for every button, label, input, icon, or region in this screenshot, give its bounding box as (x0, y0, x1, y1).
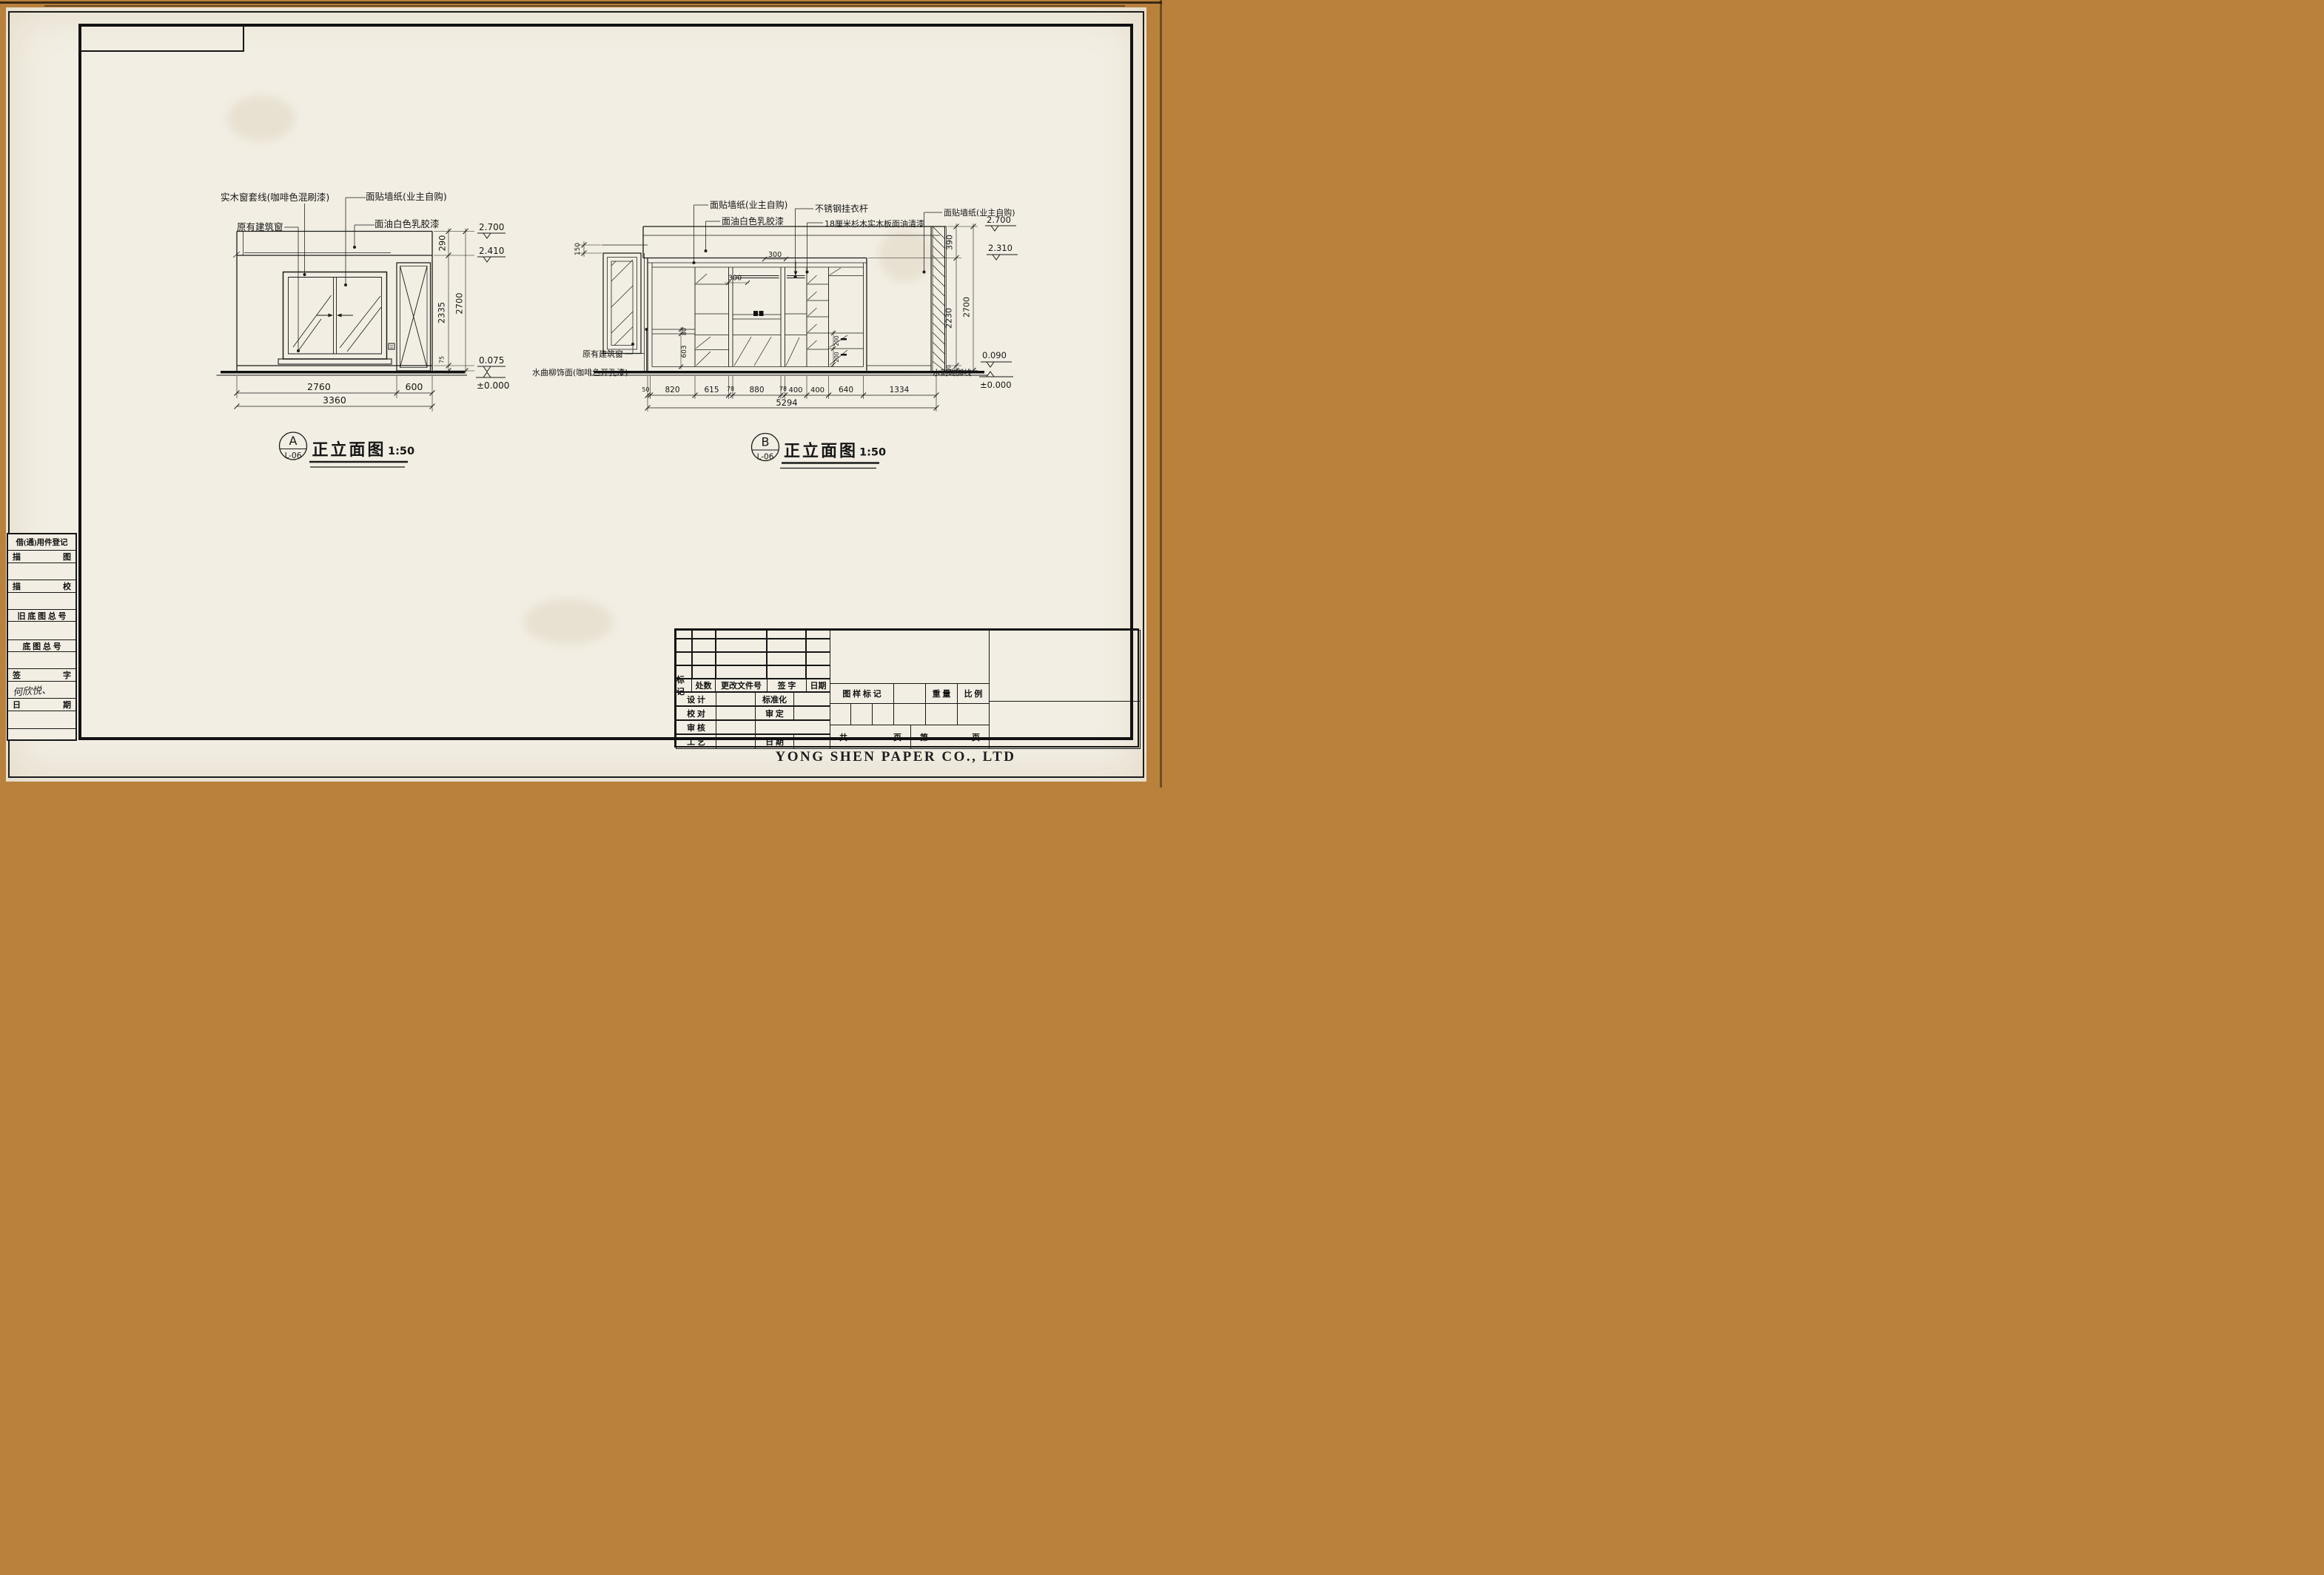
note-paint: 面油白色乳胶漆 (722, 215, 784, 226)
level-2700: 2.700 (479, 222, 504, 232)
role-craft: 工 艺 (676, 734, 716, 749)
note-wallpaper-left: 面贴墙纸(业主自购) (710, 199, 787, 210)
row-old-negative-no: 旧 底 图 总 号 (8, 610, 75, 622)
row-empty (8, 711, 75, 729)
company-name: YONG SHEN PAPER CO., LTD (711, 749, 1081, 765)
level-2700: 2.700 (987, 215, 1011, 225)
note-board: 18厘米杉木实木板面油清漆 (825, 218, 924, 229)
note-wallpaper: 面贴墙纸(业主自购) (366, 191, 447, 202)
row-empty (8, 622, 75, 640)
scan-edge-streak-top1 (0, 1, 1162, 4)
elevation-b-drawing: 150 80 603 300 300 (525, 170, 1021, 481)
pages-current: 第页 (910, 725, 990, 749)
stamp-mark: 图 样 标 记 (830, 683, 894, 704)
view-title: 正立面图 (784, 442, 858, 461)
dim-2700: 2700 (454, 292, 465, 314)
dim-200b: 200 (833, 352, 840, 363)
detail-tag: A (289, 434, 298, 448)
view-scale: 1:50 (859, 447, 886, 459)
handwritten-signature: 何欣悦、 (12, 682, 51, 699)
dim-2760: 2760 (307, 381, 331, 392)
dim-200a: 200 (833, 335, 840, 346)
dim-3360: 3360 (323, 394, 346, 406)
dim-2335: 2335 (437, 302, 447, 323)
level-0000: ±0.000 (477, 380, 509, 391)
detail-ref: L-06 (757, 453, 774, 462)
detail-tag: B (762, 435, 770, 449)
role-date: 日 期 (755, 734, 794, 749)
dim-80: 80 (681, 328, 688, 335)
dim-78a: 78 (727, 386, 734, 392)
elevation-a-drawing: 实木窗套线(咖啡色混刷漆) 原有建筑窗 面贴墙纸(业主自购) 面油白色乳胶漆 2… (207, 170, 540, 481)
pages-total: 共页 (830, 725, 911, 749)
dim-2700: 2700 (962, 297, 972, 318)
view-title: 正立面图 (312, 440, 386, 460)
level-2310: 2.310 (988, 243, 1012, 253)
dim-603: 603 (681, 345, 688, 357)
dim-640: 640 (839, 386, 853, 394)
rev-col-sign: 签 字 (767, 679, 807, 692)
dim-75: 75 (439, 356, 446, 363)
rev-col-docno: 更改文件号 (715, 679, 768, 692)
dim-880: 880 (749, 386, 764, 394)
row-trace-check: 描校 (8, 580, 75, 593)
title-block: 标记 处数 更改文件号 签 字 日期 设 计 标准化 校 对 审 定 审 核 工… (674, 628, 1139, 748)
dim-300-top: 300 (768, 251, 782, 259)
dim-150: 150 (574, 243, 582, 255)
row-date-label: 日期 (8, 699, 75, 711)
view-scale: 1:50 (388, 446, 414, 457)
dim-2230: 2230 (944, 308, 954, 329)
borrow-register-strip: 借(通)用件登记 描图 描校 旧 底 图 总 号 底 图 总 号 签字 何欣悦、… (7, 533, 77, 741)
level-0090: 0.090 (982, 350, 1007, 360)
role-proofread: 校 对 (676, 706, 716, 720)
row-empty (8, 593, 75, 610)
row-signature-value: 何欣悦、 (8, 682, 75, 699)
stamp-scale: 比 例 (957, 683, 990, 704)
dim-290: 290 (437, 235, 448, 252)
scan-edge-streak-right (1160, 0, 1162, 787)
dim-400a: 400 (788, 386, 802, 394)
dim-1334: 1334 (890, 386, 910, 394)
row-empty (8, 729, 75, 748)
note-rod: 不锈钢挂衣杆 (815, 203, 868, 214)
dim-50: 50 (642, 386, 649, 393)
rev-col-mark: 标记 (676, 679, 692, 692)
detail-ref: L-06 (285, 451, 302, 460)
row-signature-label: 签字 (8, 669, 75, 682)
note-veneer: 水曲柳饰面(咖啡色开孔漆) (532, 367, 628, 377)
dim-400b: 400 (810, 386, 825, 394)
dim-5294: 5294 (776, 397, 797, 408)
dim-600: 600 (406, 381, 423, 392)
note-window: 原有建筑窗 (237, 221, 283, 232)
top-left-register-box (78, 24, 244, 52)
row-empty (8, 563, 75, 580)
dim-390: 390 (945, 235, 955, 250)
role-design: 设 计 (676, 692, 716, 706)
row-empty (8, 652, 75, 669)
role-review: 审 核 (676, 720, 716, 734)
note-window: 原有建筑窗 (582, 349, 623, 359)
dim-90: 90 (946, 365, 953, 372)
level-2410: 2.410 (479, 246, 504, 256)
rev-col-date: 日期 (806, 679, 830, 692)
scan-edge-streak-top2 (44, 5, 1125, 7)
rev-col-count: 处数 (691, 679, 716, 692)
role-approve: 审 定 (755, 706, 794, 720)
dim-615: 615 (704, 386, 719, 394)
level-0000: ±0.000 (980, 380, 1012, 390)
dim-78b: 78 (779, 386, 787, 392)
note-paint: 面油白色乳胶漆 (375, 218, 440, 229)
scanned-drawing-sheet: 借(通)用件登记 描图 描校 旧 底 图 总 号 底 图 总 号 签字 何欣悦、… (0, 0, 1162, 787)
stamp-weight: 重 量 (925, 683, 958, 704)
role-standardization: 标准化 (755, 692, 794, 706)
row-negative-no: 底 图 总 号 (8, 640, 75, 652)
level-0075: 0.075 (479, 355, 504, 366)
register-header: 借(通)用件登记 (8, 534, 75, 551)
dim-820: 820 (665, 386, 679, 394)
row-trace-draw: 描图 (8, 551, 75, 563)
note-casing: 实木窗套线(咖啡色混刷漆) (221, 192, 329, 203)
